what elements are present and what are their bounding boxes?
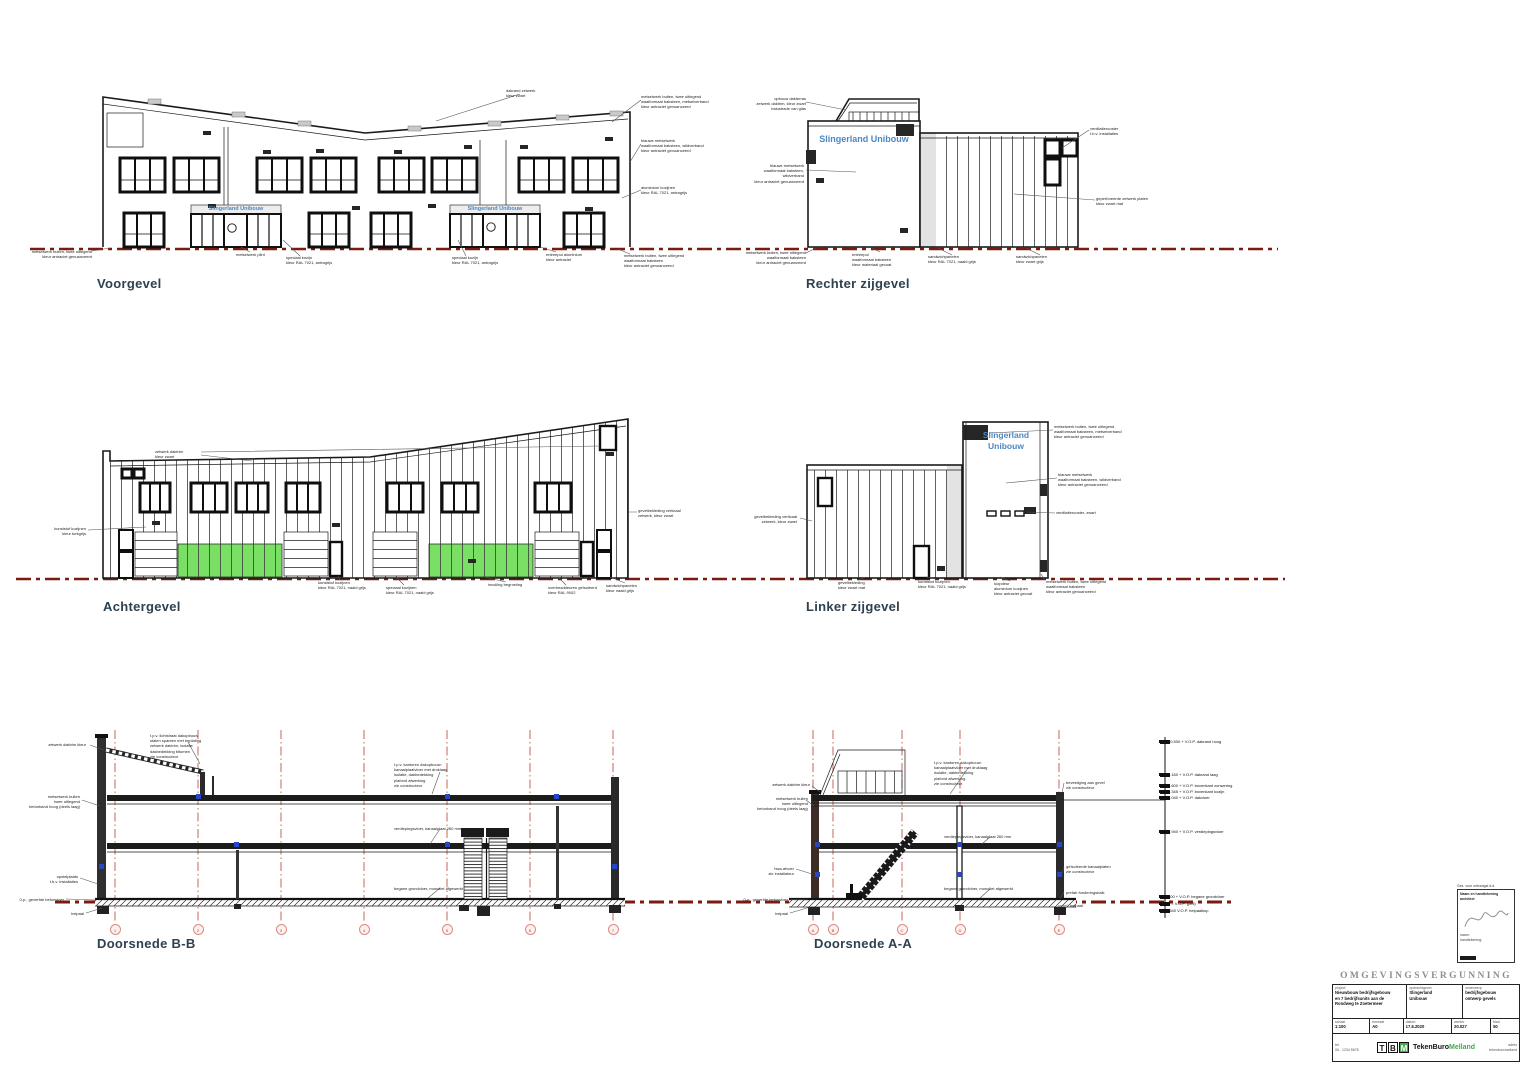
view-title-linker-zijgevel: Linker zijgevel: [806, 599, 900, 614]
annotation-label: metselwerk buiten, twee uitlegend kleur …: [30, 249, 92, 259]
field-format: formaatA0: [1370, 1019, 1403, 1033]
annotation-label: metselwerk buiten, twee uitlegend waalfo…: [624, 253, 700, 269]
annotation-label: t.p.v. kantoren dakopbouw: kanaalplaatvl…: [394, 762, 476, 788]
annotation-label: gevelbekleding kleur zwart mat: [838, 580, 894, 590]
grid-bubble: 3: [276, 924, 287, 935]
grid-bubble: C: [897, 924, 908, 935]
annotation-label: invulling begroeiing: [488, 582, 540, 587]
grid-bubble: D: [955, 924, 966, 935]
text-overlay: Voorgevel Rechter zijgevel Achtergevel L…: [0, 0, 1522, 1067]
annotation-label: opstelplaats t.b.v. installaties: [24, 874, 78, 884]
annotation-label: verdiepingsvloer, kanaalplaat 260 mm: [394, 826, 480, 831]
annotation-label: blauwe metselwerk waalformaat baksteen, …: [742, 163, 804, 184]
annotation-label: blauwe metselwerk waalformaat baksteen, …: [1058, 472, 1122, 488]
annotation-label: metselwerk buiten twee uitlegend betonba…: [14, 794, 80, 810]
annotation-label: t.p.v. lichtstraat dakopbouw stalen span…: [150, 733, 228, 759]
view-title-voorgevel: Voorgevel: [97, 276, 162, 291]
annotation-label: heipaal: [1070, 903, 1110, 908]
field-project: project Nieuwbouw bedrijfsgebouw en 7 be…: [1333, 985, 1407, 1018]
tbm-logo: T B M TekenBuroMelland: [1377, 1042, 1475, 1053]
title-block-table: project Nieuwbouw bedrijfsgebouw en 7 be…: [1332, 984, 1520, 1062]
logo-letter-t: T: [1377, 1042, 1387, 1053]
level-mark: 0 = V.O.P. (peil): [1159, 901, 1196, 906]
signature-squiggle: [1462, 903, 1510, 933]
annotation-label: heipaal: [750, 911, 788, 916]
drawing-sheet: .ol{fill:none;stroke:#1a1a1a;stroke-widt…: [0, 0, 1522, 1067]
facade-sign: Slingerland Unibouw: [450, 205, 540, 214]
annotation-label: metselwerk buiten twee uitlegend betonba…: [744, 796, 808, 812]
annotation-label: zetwerk daktrim kleur zwart: [155, 449, 201, 459]
view-title-rechter-zijgevel: Rechter zijgevel: [806, 276, 910, 291]
stamp-bar: [1460, 956, 1476, 960]
title-block-right-note: adres tekenburomelland: [1475, 1043, 1517, 1052]
view-title-achtergevel: Achtergevel: [103, 599, 181, 614]
annotation-label: entreepui aluminium kleur antraciet: [546, 252, 604, 262]
grid-bubble: A: [808, 924, 819, 935]
annotation-label: hwa-afvoer zie installateur: [742, 866, 794, 876]
annotation-label: blauwe metselwerk waalformaat baksteen, …: [641, 138, 715, 154]
grid-bubble: 1: [110, 924, 121, 935]
annotation-label: metselwerk buiten, twee uitlegend waalfo…: [744, 250, 806, 266]
grid-bubble: B: [828, 924, 839, 935]
level-mark: 4.940 + V.O.P. verdiepingsvloer: [1159, 829, 1224, 834]
stamp-box: Naam en handtekening architect naam: han…: [1457, 889, 1515, 963]
level-mark: 9.160 + V.O.P. dakrand laag: [1159, 772, 1218, 777]
facade-sign: Slingerland Unibouw: [191, 205, 281, 214]
level-mark: 8.600 + V.O.P. bovenkant zonwering: [1159, 783, 1232, 788]
grid-bubble: 6: [525, 924, 536, 935]
annotation-label: aluminium kozijnen kleur RAL 7021, antra…: [641, 185, 707, 195]
annotation-label: gevelbekleding verticaal zetwerk, kleur …: [735, 514, 797, 524]
view-title-doorsnede-aa: Doorsnede A-A: [814, 936, 912, 951]
field-subject: onderwerp bedrijfsgebouw ontwerp gevels: [1463, 985, 1519, 1018]
stamp-top-label: Gez. voor ontvangst d.d.: [1457, 884, 1515, 888]
annotation-label: kunststof kozijnen kleur RAL 7021, naald…: [918, 579, 976, 589]
annotation-label: heipaal: [46, 911, 84, 916]
stamp-note: naam: handtekening:: [1460, 933, 1512, 942]
annotation-label: sandwichpanelen kleur RAL 7021, naald gr…: [928, 254, 990, 264]
annotation-label: speciaal kozijn kleur RAL 7021, antragri…: [452, 255, 510, 265]
annotation-label: speciaal kozijn kleur RAL 7021, antragri…: [286, 255, 344, 265]
field-date: datum17.6.2020: [1404, 1019, 1452, 1033]
grid-bubble: 4: [359, 924, 370, 935]
grid-bubble: 5: [442, 924, 453, 935]
annotation-label: geïsoleerde kanaalplaten zie constructeu…: [1066, 864, 1124, 874]
level-mark: 8.040 + V.O.P. dakvloer: [1159, 795, 1210, 800]
annotation-label: prefab funderingsbalk: [1066, 890, 1122, 895]
view-title-doorsnede-bb: Doorsnede B-B: [97, 936, 196, 951]
annotation-label: metselwerk buiten, twee uitlegend waalfo…: [1054, 424, 1124, 440]
annotation-label: speciaal kozijnen kleur RAL 7021, naald …: [386, 585, 444, 595]
annotation-label: metselwerk buiten, twee uitlegend waalfo…: [641, 94, 715, 110]
level-mark: -640 V.O.P. heipaalkop: [1159, 908, 1208, 913]
annotation-label: dakrand zetwerk kleur zwart: [506, 88, 554, 98]
annotation-label: zetwerk daktrim kleur: [26, 742, 86, 747]
architect-stamp: Gez. voor ontvangst d.d. Naam en handtek…: [1457, 884, 1515, 963]
field-worknr: werknr20.027: [1452, 1019, 1491, 1033]
field-sheet: blad50: [1491, 1019, 1519, 1033]
field-client: opdrachtgever Slingerland Unibouw: [1407, 985, 1463, 1018]
title-block: OMGEVINGSVERGUNNING project Nieuwbouw be…: [1332, 971, 1520, 1062]
annotation-label: sandwichpanelen kleur naald grijs: [606, 583, 666, 593]
grid-bubble: 7: [608, 924, 619, 935]
annotation-label: zetwerk daktrim kleur: [756, 782, 810, 787]
annotation-label: loopdeur aluminium kozijnen kleur antrac…: [994, 581, 1052, 597]
logo-letter-b: B: [1388, 1042, 1398, 1053]
annotation-label: t.p.v. kantoren dakopbouw: kanaalplaatvl…: [934, 760, 1018, 786]
annotation-label: kunststof kozijnen kleur RAL 7021, naald…: [318, 580, 376, 590]
logo-letter-m: M: [1399, 1042, 1409, 1053]
grid-bubble: 2: [193, 924, 204, 935]
annotation-label: metselwerk plint: [236, 252, 282, 257]
annotation-label: kunststof kozijnen kleur turkgrijs: [28, 526, 86, 536]
annotation-label: begane grondvloer, monoliet afgewerkt: [944, 886, 1034, 891]
facade-sign: Slingerland Unibouw: [966, 430, 1046, 452]
level-mark: 400 + V.O.P. begane grondvloer: [1159, 894, 1225, 899]
annotation-label: opbouw dakterras zetwerk daktrim, kleur …: [742, 96, 806, 112]
grid-bubble: E: [1054, 924, 1065, 935]
annotation-label: gevelbekleding verticaal zetwerk, kleur …: [638, 508, 702, 518]
annotation-label: 0-p., geverfde betonvloer: [2, 897, 64, 902]
annotation-label: begane grondvloer, monoliet afgewerkt: [394, 886, 484, 891]
annotation-label: metselwerk buiten, twee uitlegend waalfo…: [1046, 579, 1114, 595]
annotation-label: verdiepingsvloer, kanaalplaat 260 mm: [944, 834, 1030, 839]
permit-header: OMGEVINGSVERGUNNING: [1332, 971, 1520, 981]
annotation-label: ventilatierooster, zwart: [1056, 510, 1114, 515]
title-block-left-note: tel. 06 - 1234 5678: [1335, 1043, 1377, 1052]
field-scale: schaal1:100: [1333, 1019, 1370, 1033]
annotation-label: entreepui waalformaat baksteen kleur mat…: [852, 252, 910, 268]
level-mark: 8.345 + V.O.P. bovenkant kozijn: [1159, 789, 1224, 794]
annotation-label: geperforeerde zetwerk platen kleur zwart…: [1096, 196, 1160, 206]
stamp-title: Naam en handtekening architect: [1460, 892, 1512, 901]
facade-sign: Slingerland Unibouw: [810, 134, 918, 144]
logo-name: TekenBuroMelland: [1413, 1044, 1475, 1051]
annotation-label: 0-p., geverfde betonvloer: [726, 897, 788, 902]
annotation-label: overheaddeuren geïsoleerd kleur RAL 9002: [548, 585, 610, 595]
level-mark: 10.500 + V.O.P. dakrand hoog: [1159, 739, 1221, 744]
annotation-label: sandwichpanelen kleur zwart grijs: [1016, 254, 1078, 264]
annotation-label: bevestiging aan gevel zie constructeur: [1066, 780, 1122, 790]
annotation-label: ventilatierooster t.b.v. installaties: [1090, 126, 1150, 136]
